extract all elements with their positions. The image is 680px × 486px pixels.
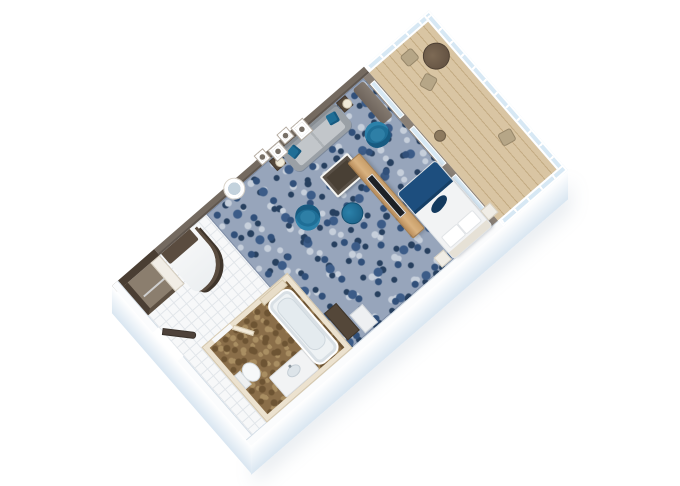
floorplan-scene	[0, 0, 680, 486]
suite-plan	[112, 10, 568, 446]
armchair-cushion	[300, 210, 315, 223]
armchair-cushion	[368, 126, 387, 144]
